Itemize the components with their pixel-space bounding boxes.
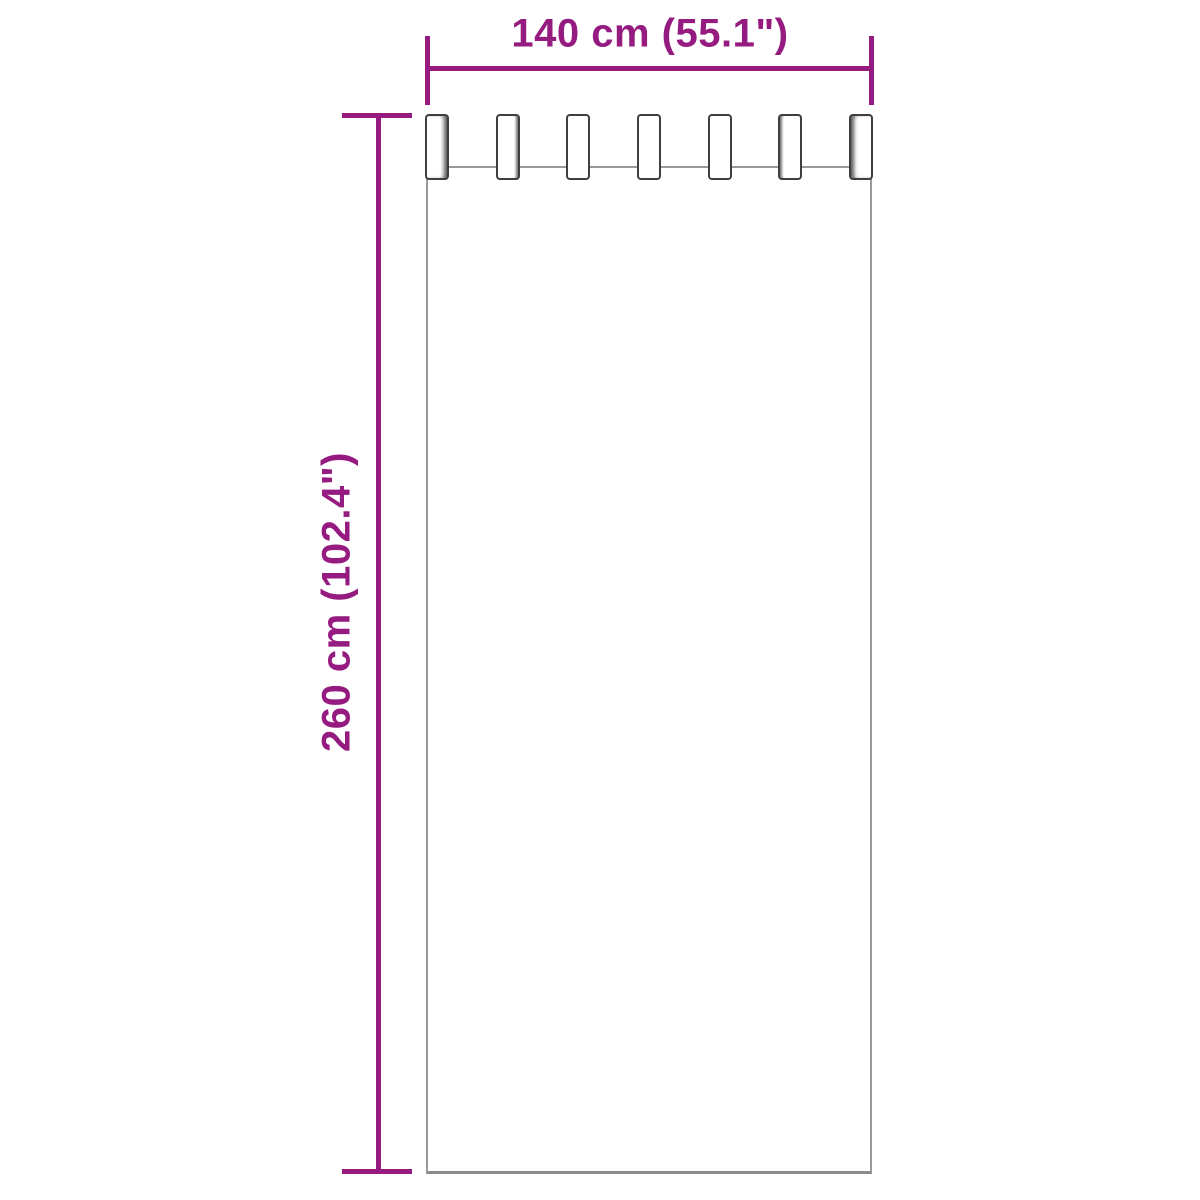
width-dimension-right-tick: [869, 36, 874, 105]
curtain-tab: [637, 114, 661, 180]
curtain-tab: [849, 114, 873, 180]
height-dimension-line: [376, 115, 381, 1172]
curtain-tab: [708, 114, 732, 180]
height-dimension-top-cap: [342, 113, 412, 118]
width-dimension-left-tick: [425, 36, 430, 105]
height-dimension-label: 260 cm (102.4"): [315, 452, 360, 752]
height-dimension-bottom-cap: [342, 1169, 412, 1174]
width-dimension-line: [427, 66, 872, 71]
curtain-tab: [778, 114, 802, 180]
curtain-panel: [426, 166, 872, 1174]
curtain-tab: [566, 114, 590, 180]
curtain-tabs: [425, 114, 873, 180]
curtain-tab: [496, 114, 520, 180]
curtain-tab: [425, 114, 449, 180]
width-dimension-label: 140 cm (55.1"): [511, 12, 788, 57]
diagram-canvas: 140 cm (55.1") 260 cm (102.4"): [0, 0, 1200, 1200]
